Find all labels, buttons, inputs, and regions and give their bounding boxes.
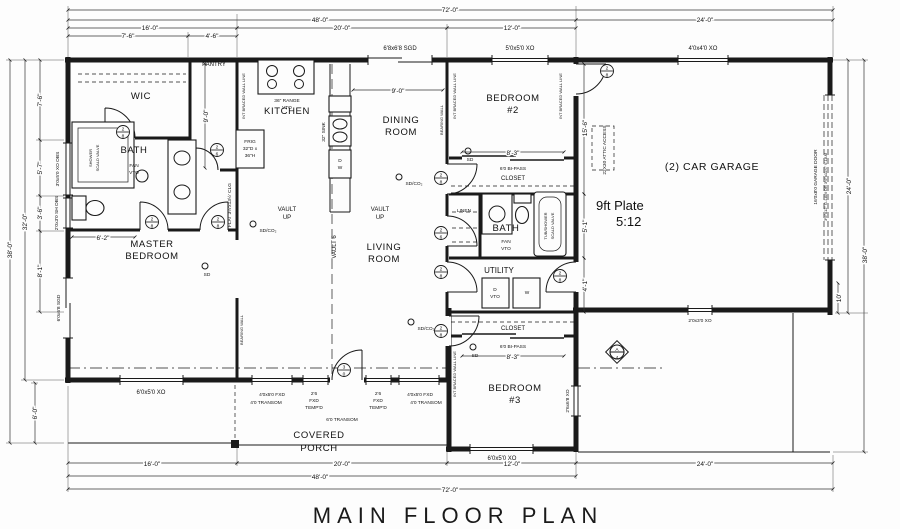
room-bath1: BATH <box>120 145 147 156</box>
room-bath2: BATH <box>492 223 519 234</box>
svg-text:2: 2 <box>440 173 443 179</box>
dim-left-36: 3'-6" <box>37 206 44 220</box>
room-wic: WIC <box>131 91 151 102</box>
window-xo-bed2: 5'0x5'0 XO <box>506 46 535 52</box>
room-living-1: LIVING <box>367 242 402 253</box>
window-xo-garage: 4'0x4'0 XO <box>689 46 718 52</box>
window-fxd-right: 4'0x5'0 FXD <box>407 392 433 398</box>
note-vault-line: VAULT 6 <box>332 235 338 259</box>
window-f26-left-size: 2'6 <box>311 391 318 397</box>
window-sgd-dining: 6'8x6'8 SGD <box>383 46 417 52</box>
svg-text:2: 2 <box>440 326 443 332</box>
label-range-2: VTO <box>282 105 292 111</box>
label-dryer: D <box>493 287 497 293</box>
window-f26-right-type: FXD <box>373 398 383 404</box>
note-roof-pitch: 5:12 <box>616 214 641 229</box>
window-fxd-left: 4'0x5'0 FXD <box>259 392 285 398</box>
plan-title: MAIN FLOOR PLAN <box>313 503 603 528</box>
label-tub-2: SCALD VALVE <box>550 212 555 239</box>
exterior-walls <box>65 57 833 452</box>
svg-text:2: 2 <box>440 228 443 234</box>
room-living-2: ROOM <box>368 254 400 265</box>
label-fan2-b: VTO <box>501 246 511 252</box>
label-shower-2: SCALD VALVE <box>95 144 100 171</box>
svg-text:2: 2 <box>216 145 219 151</box>
svg-text:8: 8 <box>606 73 609 79</box>
note-sd-2: SD <box>467 157 474 163</box>
dim-garage-top: 24'-0" <box>697 17 714 24</box>
svg-text:8: 8 <box>122 134 125 140</box>
svg-text:2: 2 <box>217 217 220 223</box>
room-bedroom2-num: #2 <box>507 105 519 116</box>
window-xo-bed3-side: 2'6x6'8 XO <box>565 389 571 412</box>
dim-24-bottom: 24'-0" <box>697 461 714 468</box>
floor-plan-drawing: 72'-0" 48'-0" 24'-0" 16'-0" 20'-0" 12'-0… <box>0 0 900 529</box>
door-swings <box>105 64 606 380</box>
label-fan1-a: FAN <box>129 163 139 169</box>
window-xo-master: 6'0x5'0 XO <box>137 390 166 396</box>
dim-76-top: 7'-6" <box>122 33 136 40</box>
room-porch-1: COVERED <box>293 430 344 441</box>
dim-48-bottom: 48'-0" <box>312 474 329 481</box>
kitchen-fixtures <box>236 60 351 212</box>
label-dryer-vto: VTO <box>490 294 500 300</box>
room-closet2: CLOSET <box>501 326 525 332</box>
window-xo-garage-south: 2'0x3'0 XO <box>688 318 711 324</box>
label-frig-1: FRIG <box>244 139 256 145</box>
svg-text:2: 2 <box>122 127 125 133</box>
dim-72-bottom: 72'-0" <box>442 487 459 494</box>
dim-bath2-depth: 5'-1" <box>582 219 589 233</box>
svg-text:2: 2 <box>440 267 443 273</box>
note-attic-access: 22X30 ATTIC ACCESS <box>602 125 608 174</box>
dim-20-top: 20'-0" <box>334 25 351 32</box>
room-porch-2: PORCH <box>300 443 337 454</box>
dim-pantry-depth: 9'-0" <box>203 109 210 123</box>
floor-plan-sheet: 72'-0" 48'-0" 24'-0" 16'-0" 20'-0" 12'-0… <box>0 0 900 529</box>
window-sh-obs: 2'0x3'0 SH OBS <box>54 196 60 230</box>
svg-text:2: 2 <box>559 271 562 277</box>
door-size-tag: 28 <box>601 65 614 79</box>
dim-master-hall: 6'-2" <box>97 235 111 242</box>
label-shower-1: SHOWER <box>88 149 93 167</box>
label-tub-1: TUB/SHOWER <box>543 212 548 239</box>
door-openings <box>100 64 835 386</box>
dim-right-10: 10' <box>836 294 843 302</box>
svg-text:8: 8 <box>440 274 443 280</box>
dim-closet2-width: 8'-3" <box>507 354 521 361</box>
svg-text:3: 3 <box>343 365 346 371</box>
room-bedroom2: BEDROOM <box>486 93 539 104</box>
note-sd-1: SD <box>204 272 211 278</box>
note-flat-ceiling: FLAT 3½'x13½' CLG <box>226 183 233 227</box>
utility-fixtures <box>482 278 540 308</box>
window-transom6: 6'0 TRANSOM <box>326 417 357 423</box>
label-dishwasher-w: W <box>338 165 343 171</box>
label-dishwasher-d: D <box>338 158 342 164</box>
dim-right-24: 24'-0" <box>846 177 853 194</box>
door-size-tag: 28 <box>554 270 567 284</box>
dim-20-bottom: 20'-0" <box>334 461 351 468</box>
dim-right-38: 38'-0" <box>862 246 869 263</box>
dim-46-top: 4'-6" <box>206 33 220 40</box>
dim-utility-depth: 4'-1" <box>582 278 589 292</box>
svg-text:2: 2 <box>151 217 154 223</box>
window-f26-right-glass: TEMP'D <box>369 405 387 411</box>
label-frig-2: 32"D x <box>243 146 258 152</box>
dim-16-top: 16'-0" <box>142 25 159 32</box>
dim-dining-width: 9'-0" <box>392 88 406 95</box>
note-sdco-1: SD/CO₂ <box>259 228 276 234</box>
note-sd-3: SD <box>472 353 479 359</box>
note-vault-2a: VAULT <box>371 207 390 213</box>
note-bearing-2: BEARING WALL <box>439 104 444 135</box>
svg-text:8: 8 <box>151 224 154 230</box>
room-linen: LINEN <box>457 208 472 214</box>
dim-left-76: 7'-6" <box>37 93 44 107</box>
room-master-1: MASTER <box>130 239 173 250</box>
window-f26-right-size: 2'6 <box>375 391 382 397</box>
dim-left-57: 5'-7" <box>37 161 44 175</box>
label-range-1: 36" RANGE <box>274 98 299 104</box>
note-braced-3: INT BRACED WALL LINE <box>558 73 563 119</box>
label-fan2-a: FAN <box>501 239 511 245</box>
svg-text:8: 8 <box>559 278 562 284</box>
room-master-2: BEDROOM <box>125 251 178 262</box>
dim-overall-top: 72'-0" <box>442 7 459 14</box>
room-closet1: CLOSET <box>501 176 525 182</box>
room-utility: UTILITY <box>484 266 514 275</box>
window-xo-bed3: 6'0x5'0 XO <box>488 456 517 462</box>
room-dining-2: ROOM <box>385 127 417 138</box>
dim-closet1-width: 8'-3" <box>507 150 521 157</box>
window-transom4-left: 4'0 TRANSOM <box>250 400 281 406</box>
svg-text:8: 8 <box>440 180 443 186</box>
note-braced-1: INT BRACED WALL LINE <box>241 73 246 119</box>
dim-bed2-depth: 15'-6" <box>582 119 589 136</box>
window-xo-obs: 3'0x5'0 XO OBS <box>55 152 61 187</box>
label-sink: 32" SINK <box>321 121 327 141</box>
note-sdco-2: SD/CO₂ <box>405 181 422 187</box>
room-garage: (2) CAR GARAGE <box>665 161 759 173</box>
room-bedroom3-num: #3 <box>509 395 521 406</box>
dim-16-bottom: 16'-0" <box>144 461 161 468</box>
note-vault-2b: UP <box>376 215 384 221</box>
svg-text:6: 6 <box>440 235 443 241</box>
dim-porch-depth: 6'-0" <box>32 406 39 420</box>
svg-text:8: 8 <box>217 224 220 230</box>
window-sgd-master: 6'0x6'8 SGD <box>56 294 62 321</box>
svg-text:2: 2 <box>606 66 609 72</box>
window-f26-left-glass: TEMP'D <box>305 405 323 411</box>
svg-text:6: 6 <box>216 152 219 158</box>
note-glam-header: 3½"x12" G-LAM OR 3½"x11⅞" V-LAM <box>823 153 828 221</box>
note-garage-door: 16'0x8'0 GARAGE DOOR <box>813 149 819 205</box>
dim-12-bottom: 12'-0" <box>504 461 521 468</box>
label-fan1-b: VTO <box>129 170 139 176</box>
note-braced-4: INT BRACED WALL LINE <box>452 351 457 397</box>
window-transom4-right: 4'0 TRANSOM <box>410 400 441 406</box>
label-washer: W <box>525 290 530 296</box>
label-frig-3: 36"H <box>245 153 256 159</box>
dim-left-32: 32'-0" <box>22 213 29 230</box>
note-vault-1a: VAULT <box>278 207 297 213</box>
note-braced-2: INT BRACED WALL LINE <box>452 73 457 119</box>
dim-house-top: 48'-0" <box>312 17 329 24</box>
door-bipass-1: 6'0 BI-PASS <box>500 166 526 172</box>
window-f26-left-type: FXD <box>309 398 319 404</box>
dim-left-38: 38'-0" <box>7 241 14 258</box>
room-bedroom3: BEDROOM <box>488 383 541 394</box>
note-sdco-3: SD/CO₂ <box>417 326 434 332</box>
note-vault-1b: UP <box>283 215 291 221</box>
room-dining-1: DINING <box>383 115 420 126</box>
section-marker-number: 4 <box>616 355 619 361</box>
room-pantry: PANTRY <box>202 62 226 68</box>
note-plate-height: 9ft Plate <box>596 198 644 213</box>
note-bearing-1: BEARING WALL <box>239 314 244 345</box>
door-bipass-2: 6'0 BI-PASS <box>500 344 526 350</box>
dim-left-81: 8'-1" <box>37 264 44 278</box>
svg-text:8: 8 <box>440 333 443 339</box>
dim-12-top: 12'-0" <box>504 25 521 32</box>
svg-text:0: 0 <box>343 372 346 378</box>
